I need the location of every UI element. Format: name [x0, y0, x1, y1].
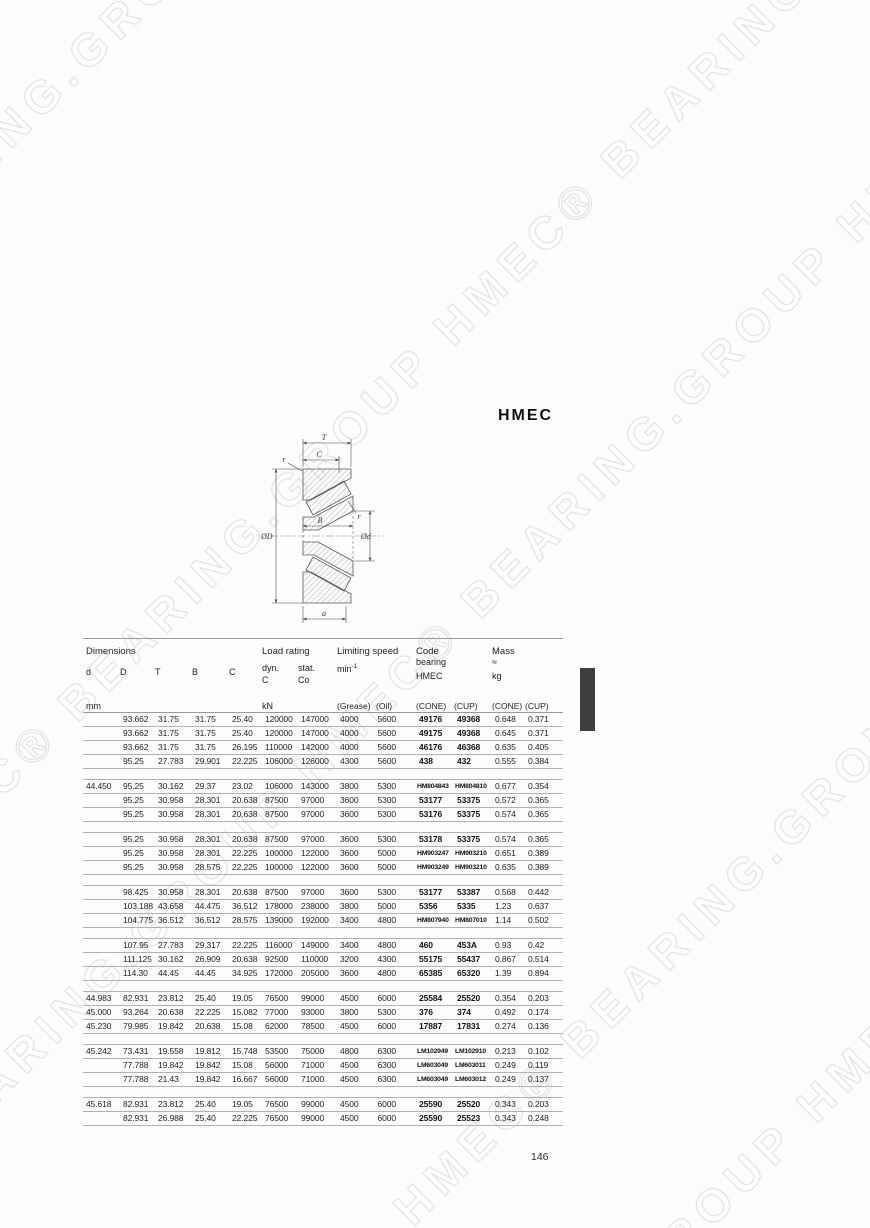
table-row: 44.45095.2530.16229.3723.021060001430003…	[83, 780, 563, 794]
table-cell: 4800	[376, 939, 416, 952]
table-cell: 147000	[298, 727, 337, 740]
page-number: 146	[531, 1151, 549, 1163]
table-cell: 46368	[454, 741, 492, 754]
table-cell: 28.575	[192, 861, 229, 874]
table-cell: 55437	[454, 953, 492, 966]
table-cell: 53176	[416, 808, 454, 821]
table-cell: 19.842	[192, 1059, 229, 1072]
header-col-T: T	[155, 667, 161, 677]
table-cell: 56000	[262, 1073, 298, 1086]
table-cell: 20.638	[229, 953, 262, 966]
table-cell: 5300	[376, 1006, 416, 1019]
table-cell: 19.842	[192, 1073, 229, 1086]
table-cell: 27.783	[155, 755, 192, 768]
table-cell: 6000	[376, 1098, 416, 1111]
header-unit-kN: kN	[262, 701, 273, 711]
table-cell: 25520	[454, 992, 492, 1005]
table-cell: 0.514	[525, 953, 563, 966]
table-cell: 56000	[262, 1059, 298, 1072]
table-cell: 36.512	[229, 900, 262, 913]
table-row: 95.2530.95828.30122.22510000012200036005…	[83, 847, 563, 861]
table-cell: 6000	[376, 992, 416, 1005]
table-cell: 99000	[298, 992, 337, 1005]
table-cell: 26.195	[229, 741, 262, 754]
table-cell: 5335	[454, 900, 492, 913]
table-cell	[83, 953, 120, 966]
table-cell: 374	[454, 1006, 492, 1019]
table-cell	[83, 741, 120, 754]
table-cell: 28.301	[192, 886, 229, 899]
table-cell: 45.242	[83, 1045, 120, 1058]
table-cell: 31.75	[192, 727, 229, 740]
table-cell: 0.343	[492, 1098, 525, 1111]
table-cell: 65320	[454, 967, 492, 980]
table-cell: 110000	[298, 953, 337, 966]
table-cell: 6000	[376, 1112, 416, 1125]
table-cell: 100000	[262, 847, 298, 860]
table-cell: LM603049	[416, 1059, 454, 1072]
table-row: 95.2530.95828.57522.22510000012200036005…	[83, 861, 563, 875]
table-cell: 30.958	[155, 833, 192, 846]
table-cell	[83, 886, 120, 899]
table-row: 45.00093.26420.63822.22515.0827700093000…	[83, 1006, 563, 1020]
table-cell: 53177	[416, 794, 454, 807]
table-cell: 4500	[337, 1020, 376, 1033]
table-cell: 4800	[376, 914, 416, 927]
table-cell: 19.558	[155, 1045, 192, 1058]
table-cell: HM804843	[416, 780, 454, 793]
table-cell: 4300	[376, 953, 416, 966]
table-cell: 31.75	[192, 741, 229, 754]
table-cell	[83, 713, 120, 726]
table-cell: 3600	[337, 794, 376, 807]
table-cell: 92500	[262, 953, 298, 966]
table-cell: 99000	[298, 1098, 337, 1111]
table-cell: 122000	[298, 861, 337, 874]
table-cell: 15.08	[229, 1059, 262, 1072]
table-cell: 30.958	[155, 886, 192, 899]
table-cell: 49368	[454, 727, 492, 740]
table-cell: 4300	[337, 755, 376, 768]
table-cell: 77.788	[120, 1059, 155, 1072]
table-cell: 30.958	[155, 794, 192, 807]
table-cell: 53375	[454, 833, 492, 846]
table-row: 104.77536.51236.51228.575139000192000340…	[83, 914, 563, 928]
table-cell: 25.40	[229, 713, 262, 726]
table-cell: 75000	[298, 1045, 337, 1058]
table-cell: 5300	[376, 833, 416, 846]
table-cell: HM903210	[454, 847, 492, 860]
table-cell: HM807010	[454, 914, 492, 927]
table-cell: 31.75	[155, 713, 192, 726]
table-cell: 0.371	[525, 727, 563, 740]
table-cell: 5300	[376, 808, 416, 821]
table-cell: 0.354	[525, 780, 563, 793]
table-cell: LM603011	[454, 1059, 492, 1072]
table-cell: 31.75	[155, 741, 192, 754]
table-cell: 0.42	[525, 939, 563, 952]
table-cell: 77.788	[120, 1073, 155, 1086]
table-cell: 20.638	[229, 808, 262, 821]
table-cell: 44.45	[155, 967, 192, 980]
header-grease: (Grease)	[337, 701, 371, 711]
table-cell: 0.203	[525, 1098, 563, 1111]
table-row: 114.3044.4544.4534.925172000205000360048…	[83, 967, 563, 981]
table-cell: 0.371	[525, 713, 563, 726]
table-cell: 65385	[416, 967, 454, 980]
table-cell: 22.225	[229, 1112, 262, 1125]
header-bearing: bearing	[416, 657, 446, 667]
table-cell: 3600	[337, 967, 376, 980]
table-row: 45.61882.93123.81225.4019.05765009900045…	[83, 1098, 563, 1112]
table-cell: 4800	[376, 967, 416, 980]
header-code: Code	[416, 646, 439, 657]
table-cell: 0.384	[525, 755, 563, 768]
table-cell: 95.25	[120, 780, 155, 793]
table-cell: 0.248	[525, 1112, 563, 1125]
table-cell: 3600	[337, 861, 376, 874]
table-cell: 0.249	[492, 1059, 525, 1072]
table-cell: 53375	[454, 808, 492, 821]
table-cell: 71000	[298, 1073, 337, 1086]
table-cell: 5600	[376, 727, 416, 740]
table-cell: 97000	[298, 808, 337, 821]
table-cell: 30.162	[155, 780, 192, 793]
table-cell: 30.162	[155, 953, 192, 966]
table-header: Dimensions Load rating Limiting speed Co…	[83, 639, 563, 713]
table-cell: 0.568	[492, 886, 525, 899]
table-cell: 95.25	[120, 755, 155, 768]
table-cell: 4500	[337, 1098, 376, 1111]
table-cell: 25520	[454, 1098, 492, 1111]
table-group-gap	[83, 981, 563, 992]
table-cell: 20.638	[155, 1006, 192, 1019]
table-cell: 0.635	[492, 741, 525, 754]
header-col-D: D	[120, 667, 127, 677]
table-cell: 76500	[262, 1112, 298, 1125]
table-cell: 15.08	[229, 1020, 262, 1033]
table-cell: 82.931	[120, 1098, 155, 1111]
table-cell: 460	[416, 939, 454, 952]
table-cell: 1.14	[492, 914, 525, 927]
table-cell: 98.425	[120, 886, 155, 899]
table-cell: 0.405	[525, 741, 563, 754]
table-cell: 0.389	[525, 847, 563, 860]
table-cell: 4800	[337, 1045, 376, 1058]
table-cell	[83, 794, 120, 807]
table-cell: 0.365	[525, 833, 563, 846]
table-cell: LM102910	[454, 1045, 492, 1058]
table-row: 77.78821.4319.84216.66756000710004500630…	[83, 1073, 563, 1087]
bearing-table: Dimensions Load rating Limiting speed Co…	[83, 638, 563, 1126]
table-cell: LM603012	[454, 1073, 492, 1086]
table-cell: 0.136	[525, 1020, 563, 1033]
table-cell: 0.442	[525, 886, 563, 899]
table-cell	[83, 833, 120, 846]
table-cell: 20.638	[229, 886, 262, 899]
table-cell: 0.249	[492, 1073, 525, 1086]
table-cell: 178000	[262, 900, 298, 913]
header-unit-mm: mm	[86, 701, 101, 711]
table-cell	[83, 939, 120, 952]
table-row: 45.23079.98519.84220.63815.0862000785004…	[83, 1020, 563, 1034]
table-cell: 93.662	[120, 727, 155, 740]
table-cell: 3600	[337, 833, 376, 846]
table-cell: 0.894	[525, 967, 563, 980]
header-cone-mass: (CONE)	[492, 701, 522, 711]
table-cell: 192000	[298, 914, 337, 927]
header-load-rating: Load rating	[262, 646, 310, 657]
header-limiting-speed: Limiting speed	[337, 646, 398, 657]
table-cell: 0.502	[525, 914, 563, 927]
dim-label-OD: ØD	[260, 532, 273, 541]
table-cell: 87500	[262, 833, 298, 846]
table-cell: 93.662	[120, 741, 155, 754]
header-col-C: C	[229, 667, 236, 677]
table-row: 93.66231.7531.7526.195110000142000400056…	[83, 741, 563, 755]
table-cell: 3400	[337, 914, 376, 927]
header-cone-code: (CONE)	[416, 701, 446, 711]
table-cell: 5300	[376, 794, 416, 807]
header-mass-kg: kg	[492, 671, 502, 681]
table-cell: 97000	[298, 794, 337, 807]
table-cell: 5000	[376, 861, 416, 874]
table-cell: 28.301	[192, 847, 229, 860]
table-cell: 0.555	[492, 755, 525, 768]
table-cell: 31.75	[155, 727, 192, 740]
table-cell	[83, 1073, 120, 1086]
table-cell: 0.354	[492, 992, 525, 1005]
table-cell: 21.43	[155, 1073, 192, 1086]
table-cell: 4500	[337, 1059, 376, 1072]
table-cell: 19.842	[155, 1059, 192, 1072]
table-cell: 29.317	[192, 939, 229, 952]
table-cell: 28.575	[229, 914, 262, 927]
table-cell: 99000	[298, 1112, 337, 1125]
table-cell: 0.274	[492, 1020, 525, 1033]
table-cell: 1.39	[492, 967, 525, 980]
table-cell: 0.867	[492, 953, 525, 966]
table-cell: 106000	[262, 780, 298, 793]
table-cell: 5000	[376, 847, 416, 860]
table-cell: 79.985	[120, 1020, 155, 1033]
table-cell: 15.082	[229, 1006, 262, 1019]
table-cell: 27.783	[155, 939, 192, 952]
table-cell: 4000	[337, 727, 376, 740]
header-col-min: min-1	[337, 663, 357, 674]
table-cell: 93.264	[120, 1006, 155, 1019]
table-cell: 55175	[416, 953, 454, 966]
table-cell: 26.909	[192, 953, 229, 966]
header-dimensions: Dimensions	[86, 646, 136, 657]
table-cell: 22.225	[229, 755, 262, 768]
table-row: 82.93126.98825.4022.22576500990004500600…	[83, 1112, 563, 1126]
table-cell: 20.638	[229, 794, 262, 807]
table-cell: 53387	[454, 886, 492, 899]
header-mass: Mass	[492, 646, 515, 657]
table-cell: 25584	[416, 992, 454, 1005]
table-row: 111.12530.16226.90920.638925001100003200…	[83, 953, 563, 967]
table-cell	[83, 847, 120, 860]
table-cell: 45.000	[83, 1006, 120, 1019]
table-cell: 97000	[298, 833, 337, 846]
table-cell: 0.677	[492, 780, 525, 793]
table-cell: 205000	[298, 967, 337, 980]
dim-label-C: C	[316, 450, 322, 459]
header-col-d: d	[86, 667, 91, 677]
table-group-gap	[83, 769, 563, 780]
table-cell: 0.492	[492, 1006, 525, 1019]
table-cell: 19.05	[229, 992, 262, 1005]
table-cell: 0.203	[525, 992, 563, 1005]
table-row: 93.66231.7531.7525.401200001470004000560…	[83, 727, 563, 741]
table-cell: 44.475	[192, 900, 229, 913]
table-cell: 4500	[337, 1112, 376, 1125]
table-cell: 0.137	[525, 1073, 563, 1086]
table-cell: 0.574	[492, 808, 525, 821]
table-cell: 23.812	[155, 1098, 192, 1111]
table-cell	[83, 808, 120, 821]
table-cell: 3800	[337, 780, 376, 793]
table-row: 77.78819.84219.84215.0856000710004500630…	[83, 1059, 563, 1073]
table-cell	[83, 914, 120, 927]
table-cell: 77000	[262, 1006, 298, 1019]
table-cell: 49176	[416, 713, 454, 726]
table-cell: 28.301	[192, 808, 229, 821]
table-cell: 139000	[262, 914, 298, 927]
table-row: 95.2530.95828.30120.63887500970003600530…	[83, 794, 563, 808]
table-cell: 0.572	[492, 794, 525, 807]
table-cell: 76500	[262, 992, 298, 1005]
table-cell	[83, 861, 120, 874]
table-cell: 22.225	[192, 1006, 229, 1019]
table-cell: 53177	[416, 886, 454, 899]
table-cell: 3800	[337, 1006, 376, 1019]
table-cell	[83, 1059, 120, 1072]
table-cell: 0.645	[492, 727, 525, 740]
table-cell: 82.931	[120, 1112, 155, 1125]
table-cell: 5600	[376, 755, 416, 768]
table-cell: 36.512	[192, 914, 229, 927]
table-cell: 25590	[416, 1098, 454, 1111]
table-cell: 93000	[298, 1006, 337, 1019]
table-cell: 93.662	[120, 713, 155, 726]
table-cell: 4500	[337, 1073, 376, 1086]
table-cell: 6300	[376, 1045, 416, 1058]
header-col-dyn: dyn.	[262, 663, 279, 673]
table-cell: 71000	[298, 1059, 337, 1072]
table-cell: 53375	[454, 794, 492, 807]
table-cell: 45.230	[83, 1020, 120, 1033]
table-cell: 3200	[337, 953, 376, 966]
table-cell: 23.812	[155, 992, 192, 1005]
table-cell: 25.40	[192, 1098, 229, 1111]
table-cell: 6300	[376, 1073, 416, 1086]
table-cell: 28.301	[192, 794, 229, 807]
table-cell: 22.225	[229, 861, 262, 874]
table-cell: 3400	[337, 939, 376, 952]
table-cell: 15.748	[229, 1045, 262, 1058]
header-col-B: B	[192, 667, 198, 677]
table-cell: 100000	[262, 861, 298, 874]
table-cell: 44.450	[83, 780, 120, 793]
table-cell: 26.988	[155, 1112, 192, 1125]
header-hmec: HMEC	[416, 671, 443, 681]
table-cell: 3600	[337, 847, 376, 860]
table-row: 44.98382.93123.81225.4019.05765009900045…	[83, 992, 563, 1006]
header-mass-approx: ≈	[492, 657, 497, 667]
table-cell: 95.25	[120, 861, 155, 874]
table-group-gap	[83, 1034, 563, 1045]
table-cell: 0.365	[525, 808, 563, 821]
header-col-stat: stat.	[298, 663, 315, 673]
watermark-line: HMEC® BEARING.GROUP HMEC® BEARING.GROUP …	[0, 0, 870, 458]
table-cell: 106000	[262, 755, 298, 768]
table-row: 98.42530.95828.30120.6388750097000360053…	[83, 886, 563, 900]
table-cell: LM603049	[416, 1073, 454, 1086]
table-cell: 6300	[376, 1059, 416, 1072]
table-cell: 31.75	[192, 713, 229, 726]
table-cell: 0.102	[525, 1045, 563, 1058]
table-cell: 120000	[262, 727, 298, 740]
table-cell: 87500	[262, 886, 298, 899]
table-cell: 53500	[262, 1045, 298, 1058]
table-cell: HM807940	[416, 914, 454, 927]
table-cell: 238000	[298, 900, 337, 913]
table-cell: 25590	[416, 1112, 454, 1125]
table-cell: 46176	[416, 741, 454, 754]
table-cell: 111.125	[120, 953, 155, 966]
table-cell: 87500	[262, 794, 298, 807]
table-cell: 142000	[298, 741, 337, 754]
table-row: 95.2527.78329.90122.22510600012600043005…	[83, 755, 563, 769]
table-cell	[83, 727, 120, 740]
table-cell: 0.213	[492, 1045, 525, 1058]
table-cell: HM903249	[416, 861, 454, 874]
table-cell: LM102949	[416, 1045, 454, 1058]
table-cell: 0.93	[492, 939, 525, 952]
table-row: 95.2530.95828.30120.63887500970003600530…	[83, 833, 563, 847]
table-cell: 0.343	[492, 1112, 525, 1125]
table-cell: 95.25	[120, 794, 155, 807]
table-cell: 114.30	[120, 967, 155, 980]
table-cell: 5356	[416, 900, 454, 913]
table-cell: 453A	[454, 939, 492, 952]
header-col-dyn-C: C	[262, 675, 269, 685]
table-cell: 95.25	[120, 808, 155, 821]
table-cell: 4000	[337, 741, 376, 754]
table-cell: 20.638	[192, 1020, 229, 1033]
table-cell: 95.25	[120, 833, 155, 846]
table-cell: 376	[416, 1006, 454, 1019]
table-cell: 30.958	[155, 861, 192, 874]
dim-label-a: a	[322, 609, 326, 618]
table-cell: 30.958	[155, 847, 192, 860]
table-cell: 3600	[337, 808, 376, 821]
table-cell: 5300	[376, 780, 416, 793]
table-cell: 0.389	[525, 861, 563, 874]
table-cell: 30.958	[155, 808, 192, 821]
table-cell: 0.119	[525, 1059, 563, 1072]
table-row: 45.24273.43119.55819.81215.7485350075000…	[83, 1045, 563, 1059]
table-row: 93.66231.7531.7525.401200001470004000560…	[83, 713, 563, 727]
table-cell: 23.02	[229, 780, 262, 793]
dim-label-r-top: r	[282, 455, 286, 464]
table-cell	[83, 900, 120, 913]
catalog-page: HMEC® BEARING.GROUP HMEC® BEARING.GROUP …	[0, 0, 870, 1228]
table-cell: 120000	[262, 713, 298, 726]
table-cell: 25.40	[192, 1112, 229, 1125]
